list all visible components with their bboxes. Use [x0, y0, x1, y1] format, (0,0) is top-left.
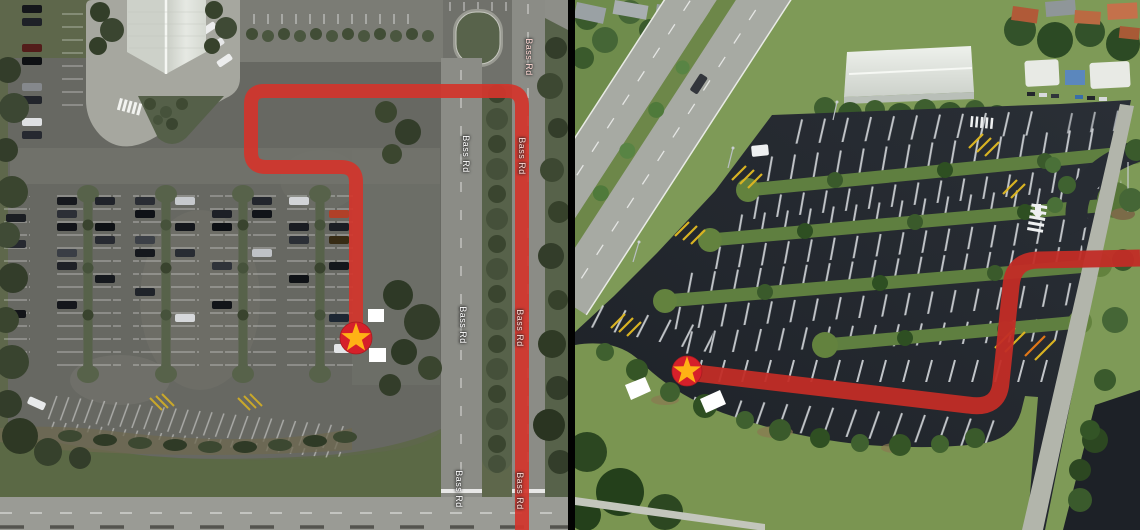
road-label-bass-rd: Bass Rd	[515, 309, 525, 347]
road-label-bass-rd: Bass Rd	[524, 38, 534, 76]
split-aerial-view: Bass Rd Bass Rd Bass Rd Bass Rd Bass Rd …	[0, 0, 1140, 530]
road-label-bass-rd: Bass Rd	[515, 472, 525, 510]
parking-spot-marker[interactable]	[368, 309, 384, 322]
destination-star-marker[interactable]	[672, 356, 702, 386]
aerial-photo-panel[interactable]	[575, 0, 1140, 530]
road-label-bass-rd: Bass Rd	[454, 470, 464, 508]
parking-spot-marker[interactable]	[369, 348, 386, 362]
panel-divider	[568, 0, 575, 530]
road-label-bass-rd: Bass Rd	[517, 137, 527, 175]
satellite-map-panel[interactable]: Bass Rd Bass Rd Bass Rd Bass Rd Bass Rd …	[0, 0, 568, 530]
aerial-photo-canvas	[575, 0, 1140, 530]
top-drive	[230, 0, 445, 62]
satellite-map-canvas	[0, 0, 568, 530]
destination-star-marker[interactable]	[340, 322, 372, 354]
road-label-bass-rd: Bass Rd	[461, 135, 471, 173]
road-label-bass-rd: Bass Rd	[458, 306, 468, 344]
